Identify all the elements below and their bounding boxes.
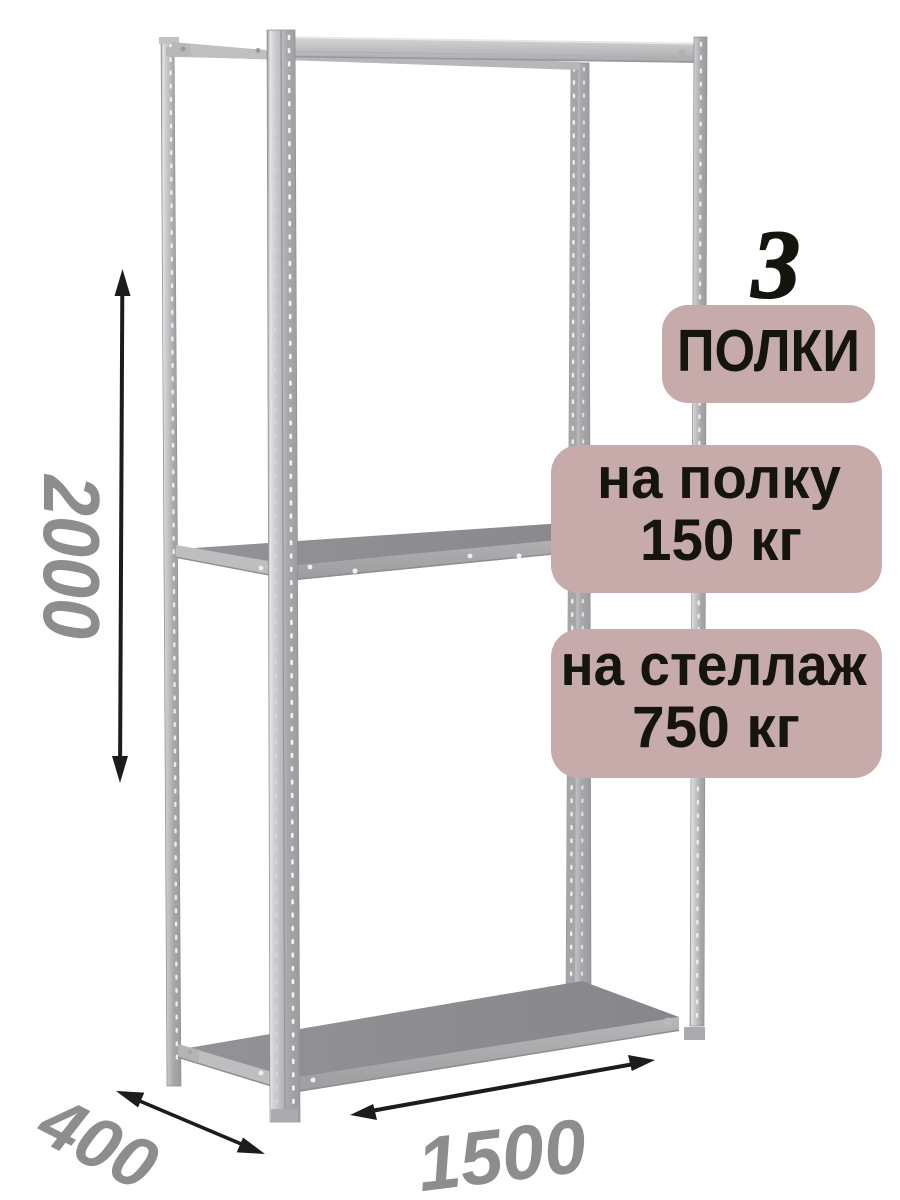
svg-text:на стеллаж: на стеллаж: [561, 633, 868, 698]
svg-text:3: 3: [751, 211, 801, 318]
svg-text:750 кг: 750 кг: [632, 695, 800, 760]
svg-text:2000: 2000: [27, 473, 116, 639]
svg-text:150 кг: 150 кг: [640, 508, 802, 573]
svg-text:на полку: на полку: [597, 446, 841, 511]
svg-text:ПОЛКИ: ПОЛКИ: [677, 318, 860, 384]
